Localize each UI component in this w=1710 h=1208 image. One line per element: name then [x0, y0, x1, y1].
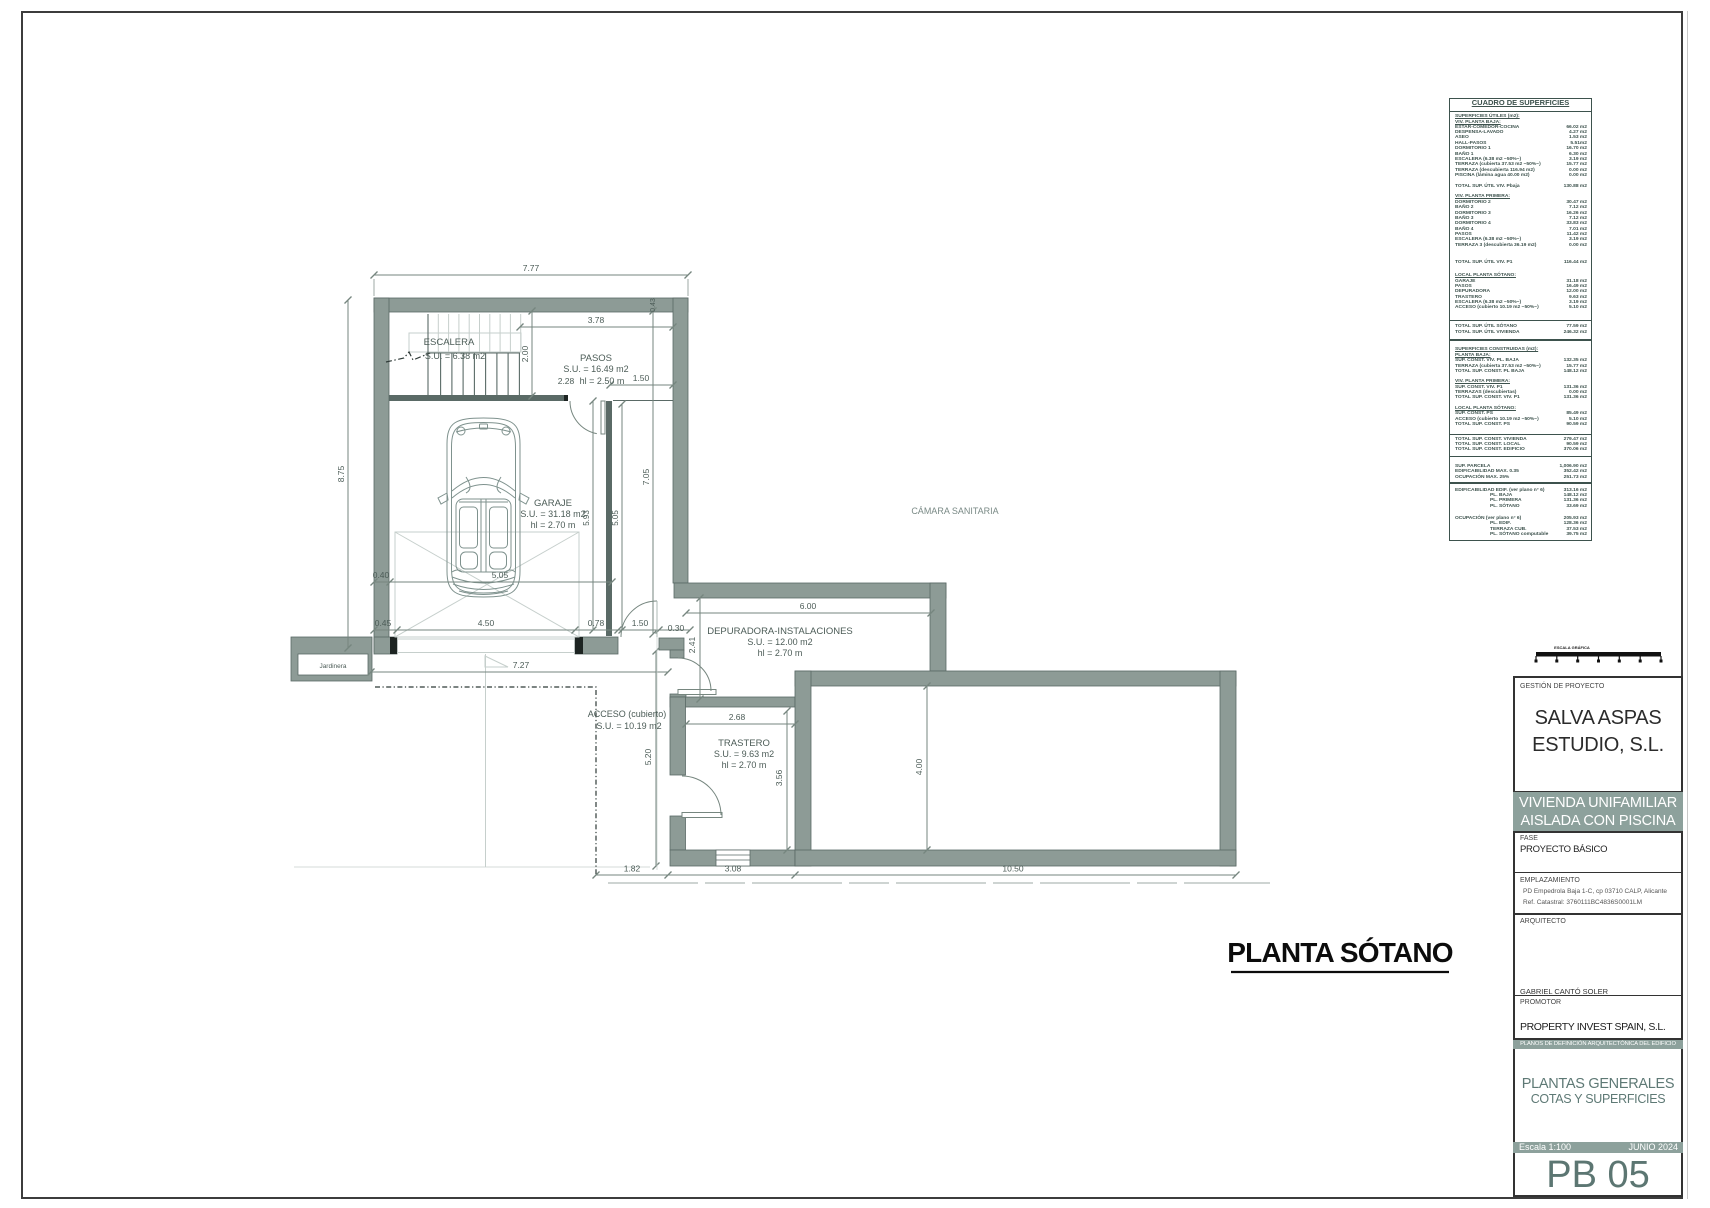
svg-text:PASOS: PASOS	[580, 353, 612, 364]
svg-text:1.50: 1.50	[632, 618, 649, 628]
svg-text:0.40: 0.40	[373, 570, 390, 580]
svg-text:S.U. = 6.38 m2: S.U. = 6.38 m2	[425, 351, 485, 361]
svg-text:1.82: 1.82	[624, 864, 641, 874]
svg-text:ACCESO (cubierto): ACCESO (cubierto)	[588, 709, 667, 719]
svg-text:DEPURADORA-INSTALACIONES: DEPURADORA-INSTALACIONES	[707, 626, 853, 637]
svg-text:7.05: 7.05	[641, 468, 651, 485]
svg-text:2.41: 2.41	[687, 636, 697, 653]
svg-text:1.50: 1.50	[633, 373, 650, 383]
svg-text:TRASTERO: TRASTERO	[718, 738, 770, 749]
svg-text:S.U. = 12.00 m2: S.U. = 12.00 m2	[747, 637, 812, 647]
svg-text:0.30: 0.30	[668, 623, 685, 633]
svg-text:5.20: 5.20	[643, 748, 653, 765]
svg-text:Jardinera: Jardinera	[319, 663, 346, 670]
svg-text:hl = 2.70 m: hl = 2.70 m	[758, 648, 803, 658]
svg-text:4.00: 4.00	[914, 758, 924, 775]
svg-text:ESCALERA: ESCALERA	[424, 337, 475, 348]
svg-text:ESCALA GRÁFICA: ESCALA GRÁFICA	[1554, 645, 1590, 650]
svg-text:PLANTA SÓTANO: PLANTA SÓTANO	[1227, 937, 1453, 968]
svg-text:S.U. = 9.63 m2: S.U. = 9.63 m2	[714, 749, 774, 759]
svg-text:0.78: 0.78	[588, 618, 605, 628]
svg-text:hl = 2.70 m: hl = 2.70 m	[722, 760, 767, 770]
svg-text:2.68: 2.68	[729, 712, 746, 722]
svg-text:0.45: 0.45	[375, 618, 392, 628]
svg-text:3.56: 3.56	[774, 769, 784, 786]
svg-text:0.43: 0.43	[650, 298, 657, 312]
svg-text:S.U. = 31.18 m2: S.U. = 31.18 m2	[520, 509, 585, 519]
svg-text:3.78: 3.78	[588, 315, 605, 325]
svg-text:GARAJE: GARAJE	[534, 498, 572, 509]
svg-text:CÁMARA SANITARIA: CÁMARA SANITARIA	[911, 506, 998, 516]
svg-text:4.50: 4.50	[478, 618, 495, 628]
svg-text:7.77: 7.77	[523, 263, 540, 273]
svg-text:hl = 2.50 m: hl = 2.50 m	[580, 376, 625, 386]
svg-text:5.05: 5.05	[492, 570, 509, 580]
svg-text:2.28: 2.28	[558, 376, 575, 386]
svg-text:S.U. = 10.19 m2: S.U. = 10.19 m2	[596, 721, 661, 731]
svg-text:8.75: 8.75	[336, 465, 346, 482]
svg-text:3.08: 3.08	[725, 864, 742, 874]
svg-text:hl = 2.70 m: hl = 2.70 m	[531, 520, 576, 530]
svg-text:7.27: 7.27	[513, 660, 530, 670]
svg-text:6.00: 6.00	[800, 601, 817, 611]
svg-text:5.05: 5.05	[611, 510, 620, 526]
svg-text:S.U. = 16.49 m2: S.U. = 16.49 m2	[563, 364, 628, 374]
svg-text:2.00: 2.00	[520, 345, 530, 362]
svg-text:10.50: 10.50	[1002, 864, 1024, 874]
